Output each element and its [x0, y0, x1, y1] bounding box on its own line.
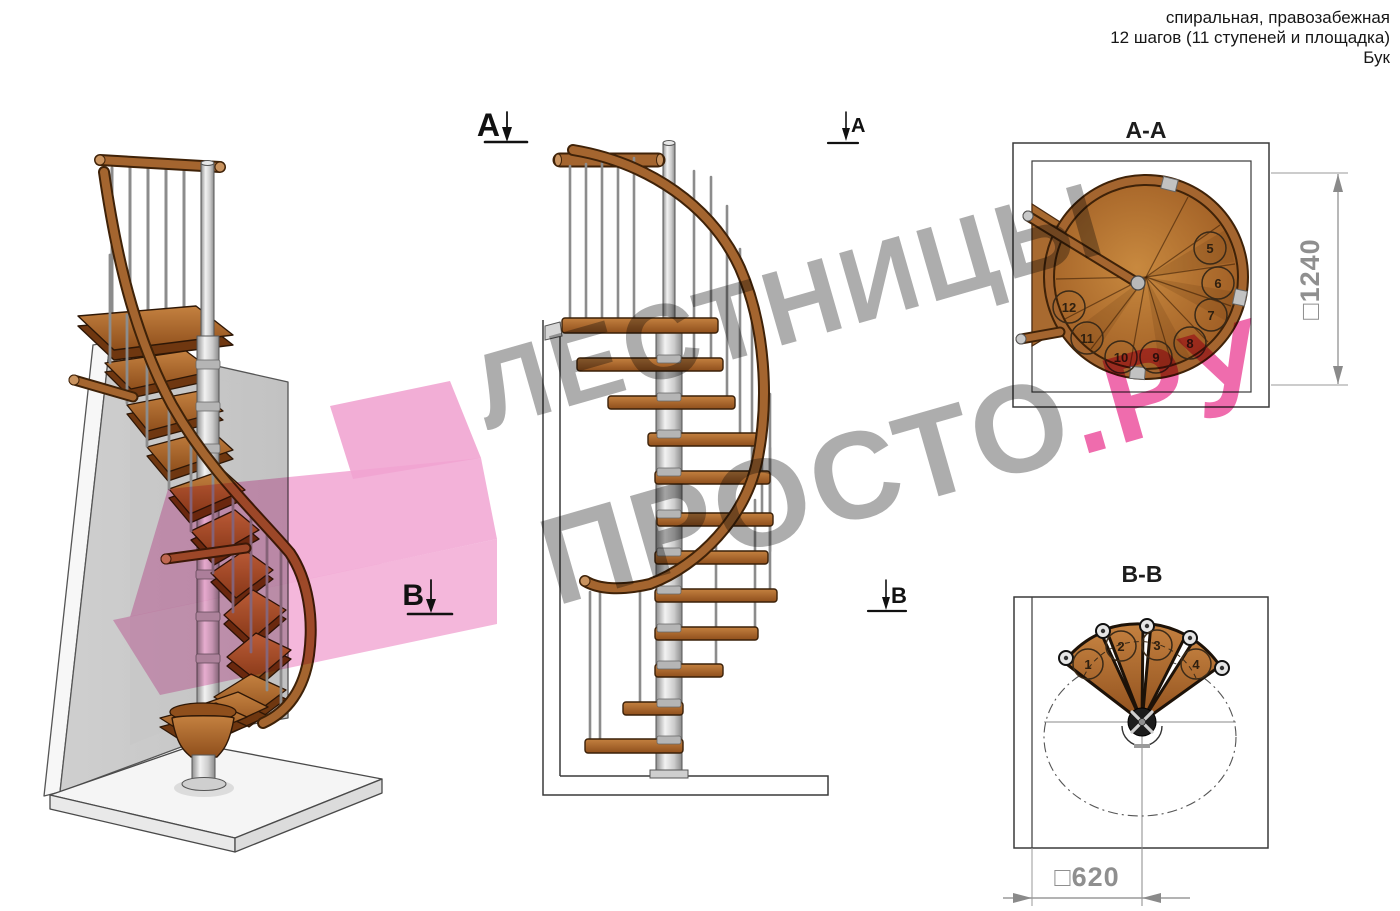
arrow-down-icon [502, 127, 512, 142]
marker-letter: A [851, 115, 865, 137]
marker-letter: A [477, 107, 500, 143]
step-number: 1 [1084, 657, 1091, 672]
bb-dimension: □620 [1003, 848, 1190, 906]
stair-type-label: спиральная, правозабежная [1110, 8, 1390, 28]
material-label: Бук [1110, 48, 1390, 68]
arrow-down-icon [842, 128, 850, 141]
step-number: 4 [1192, 657, 1200, 672]
marker-letter: B [402, 579, 424, 612]
step-number: 3 [1153, 638, 1160, 653]
step-number: 12 [1062, 300, 1076, 315]
title-block: спиральная, правозабежная 12 шагов (11 с… [1110, 8, 1390, 68]
staircase-drawing-canvas: A-A [0, 0, 1400, 911]
section-bb: B-B 1 [1003, 561, 1268, 906]
step-number: 6 [1214, 276, 1221, 291]
aa-dimension-label: □1240 [1295, 238, 1325, 319]
aa-dimension: □1240 [1271, 173, 1348, 385]
arrow-down-icon [882, 597, 890, 610]
bb-dimension-label: □620 [1054, 862, 1119, 892]
section-marker-b-right: B [868, 580, 907, 611]
marker-letter: B [891, 583, 907, 608]
section-marker-a-right: A [828, 112, 865, 143]
step-number: 2 [1117, 639, 1124, 654]
step-number: 5 [1206, 241, 1213, 256]
step-count-label: 12 шагов (11 ступеней и площадка) [1110, 28, 1390, 48]
section-marker-a-left: A [477, 107, 527, 143]
section-bb-title: B-B [1122, 561, 1163, 587]
section-aa-title: A-A [1126, 117, 1167, 143]
